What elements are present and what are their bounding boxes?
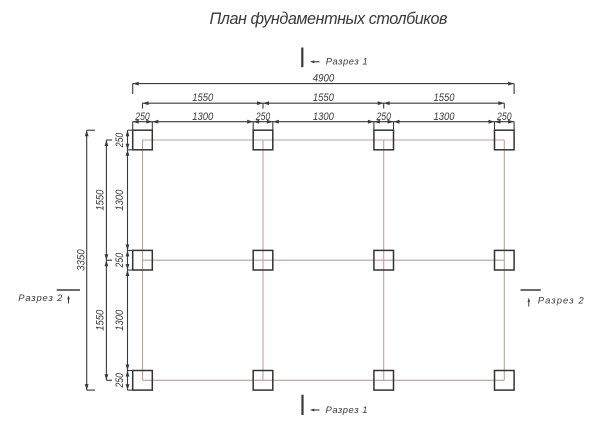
svg-text:3350: 3350	[75, 249, 87, 271]
svg-text:250: 250	[496, 111, 512, 123]
svg-text:Разрез 1: Разрез 1	[326, 404, 368, 415]
svg-text:250: 250	[114, 373, 126, 389]
svg-text:4900: 4900	[313, 72, 335, 84]
svg-text:1550: 1550	[192, 92, 214, 104]
svg-text:Разрез 1: Разрез 1	[326, 56, 368, 67]
svg-text:1300: 1300	[114, 189, 126, 211]
svg-text:1300: 1300	[434, 111, 456, 123]
svg-text:1550: 1550	[434, 92, 456, 104]
svg-text:1550: 1550	[95, 189, 107, 211]
svg-text:250: 250	[134, 111, 150, 123]
svg-text:План фундаментных столбиков: План фундаментных столбиков	[210, 10, 448, 28]
svg-text:250: 250	[114, 252, 126, 268]
svg-text:1300: 1300	[192, 111, 214, 123]
svg-text:1300: 1300	[114, 309, 126, 331]
svg-text:Разрез 2: Разрез 2	[18, 292, 63, 303]
svg-text:250: 250	[255, 111, 271, 123]
svg-text:1550: 1550	[313, 92, 335, 104]
svg-text:1550: 1550	[95, 309, 107, 331]
svg-text:1300: 1300	[313, 111, 335, 123]
svg-text:250: 250	[114, 132, 126, 148]
svg-text:250: 250	[376, 111, 392, 123]
